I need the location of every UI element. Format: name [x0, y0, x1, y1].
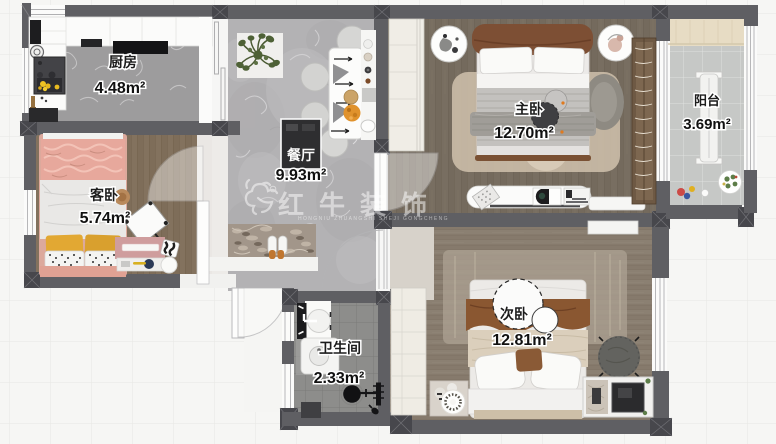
svg-text:4.48m²: 4.48m² — [95, 80, 146, 97]
svg-text:12.81m²: 12.81m² — [492, 332, 552, 349]
svg-text:主卧: 主卧 — [515, 101, 543, 117]
svg-text:客卧: 客卧 — [89, 187, 118, 203]
svg-text:厨房: 厨房 — [109, 54, 137, 70]
svg-text:阳台: 阳台 — [694, 93, 720, 108]
svg-text:次卧: 次卧 — [500, 306, 528, 322]
svg-text:5.74m²: 5.74m² — [80, 210, 131, 227]
svg-text:9.93m²: 9.93m² — [276, 167, 327, 184]
svg-text:餐厅: 餐厅 — [286, 147, 315, 163]
svg-text:卫生间: 卫生间 — [319, 340, 361, 356]
svg-text:2.33m²: 2.33m² — [314, 370, 365, 387]
svg-text:12.70m²: 12.70m² — [494, 125, 554, 142]
svg-text:3.69m²: 3.69m² — [683, 116, 731, 133]
svg-text:HONGNIU ZHUANGSHI SHEJI GONGCH: HONGNIU ZHUANGSHI SHEJI GONGCHENG — [298, 216, 449, 222]
